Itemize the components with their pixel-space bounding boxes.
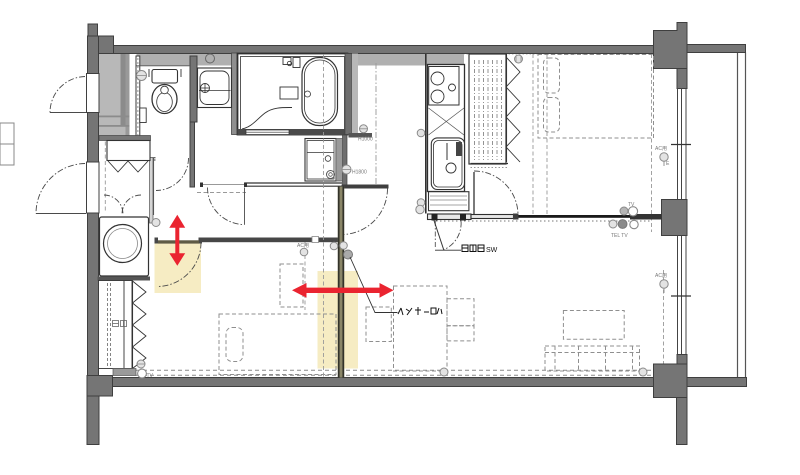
svg-text:AC用: AC用 <box>297 243 309 249</box>
svg-text:TV: TV <box>147 373 154 379</box>
svg-text:AC用: AC用 <box>655 146 667 152</box>
svg-text:H1800: H1800 <box>352 170 367 176</box>
svg-text:AC用: AC用 <box>655 273 667 279</box>
svg-text:H1000: H1000 <box>358 137 373 143</box>
svg-text:TV: TV <box>628 202 635 208</box>
svg-text:SW: SW <box>486 247 498 254</box>
svg-text:TEL TV: TEL TV <box>611 233 628 239</box>
